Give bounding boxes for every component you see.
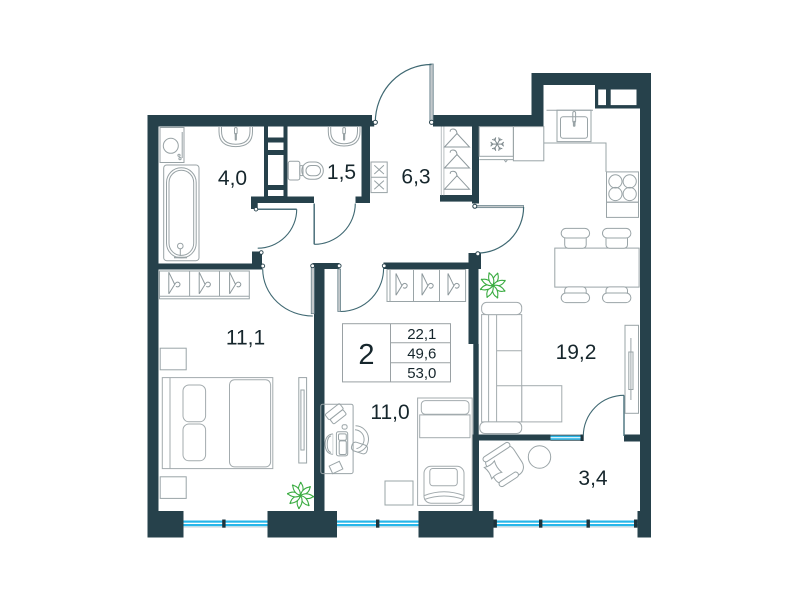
svg-text:49,6: 49,6	[407, 345, 436, 362]
svg-text:1,5: 1,5	[327, 161, 356, 184]
svg-text:3,4: 3,4	[578, 467, 608, 490]
svg-text:6,3: 6,3	[401, 166, 430, 189]
svg-text:11,1: 11,1	[226, 327, 265, 350]
svg-text:19,2: 19,2	[556, 341, 597, 364]
svg-text:11,0: 11,0	[370, 401, 409, 424]
svg-text:53,0: 53,0	[407, 365, 436, 382]
svg-text:22,1: 22,1	[407, 326, 436, 343]
svg-text:2: 2	[358, 339, 374, 371]
svg-text:4,0: 4,0	[218, 167, 247, 190]
